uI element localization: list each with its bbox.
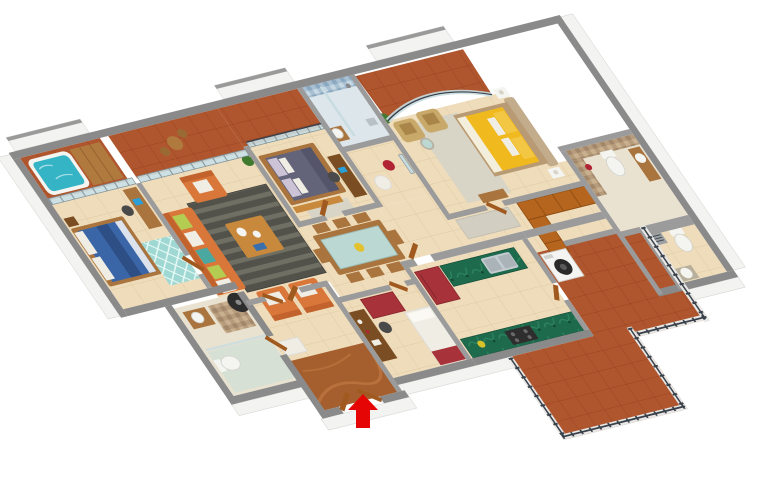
floor-plan-render xyxy=(0,0,780,490)
floor-plan-canvas xyxy=(0,0,780,490)
isometric-plan xyxy=(0,0,780,490)
